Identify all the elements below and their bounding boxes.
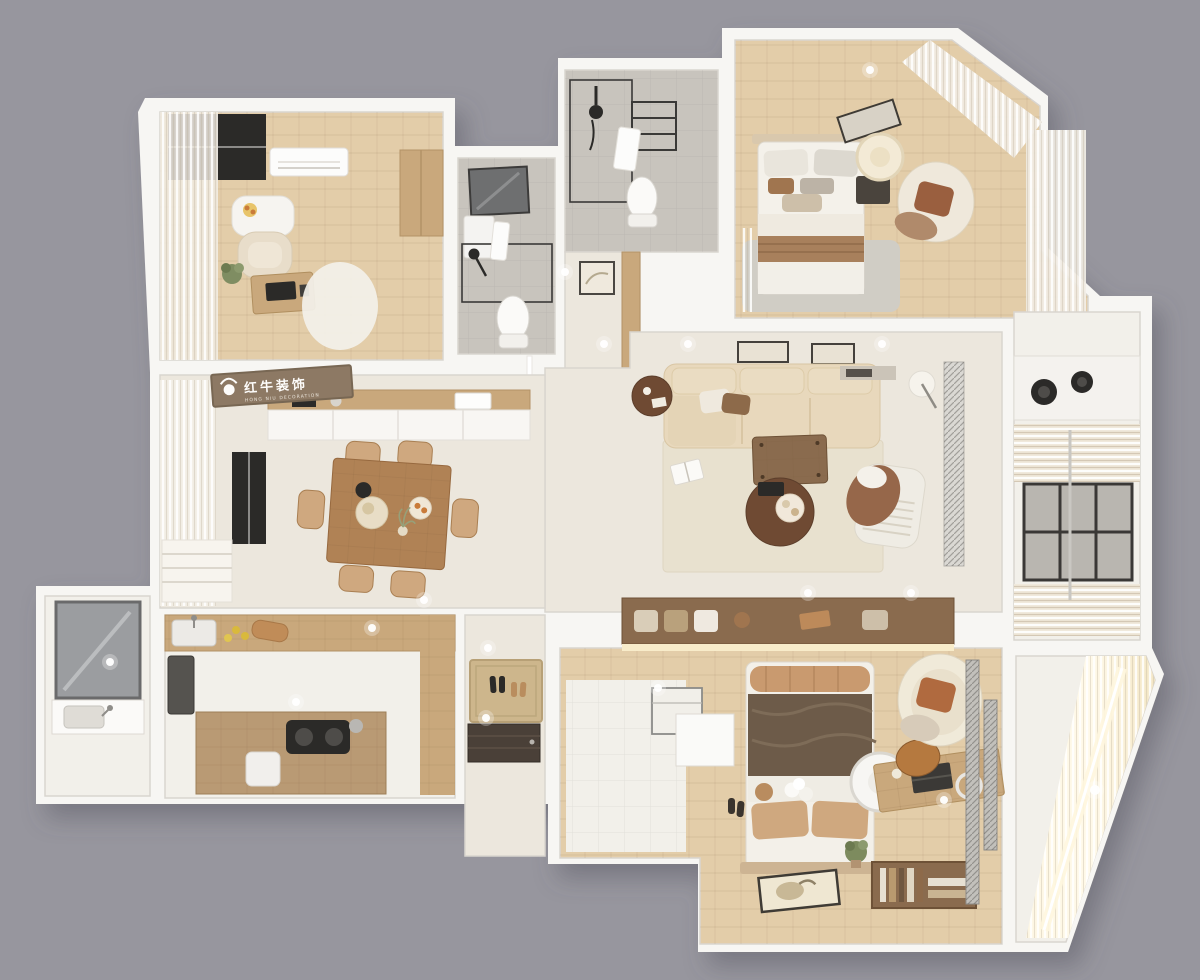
dining-roman-shades [162,540,232,602]
living-vent-hatch [944,362,964,566]
downlight [650,680,666,696]
console-clock [734,612,750,628]
door-handle [530,740,535,745]
downlight [800,585,816,601]
dining-window [232,452,266,544]
kitchenette-blinds-upper-slats [1014,424,1140,482]
downlight [936,792,952,808]
pillow-tan [811,801,869,840]
bathroom1-towel [490,221,510,260]
lemon [232,626,240,634]
bedroom2-pendant-lamp [857,134,903,180]
downlight [478,710,494,726]
downlight [596,336,612,352]
rolled-blanket [750,666,870,692]
closet-cube [676,714,734,766]
led-glow-strip [622,644,954,651]
study-rug [302,262,378,350]
lemon [241,632,249,640]
closet-console [622,598,954,651]
downlight [1086,781,1104,799]
room-living [545,332,1002,612]
kitchenette-blinds-lower-slats [1014,584,1140,636]
table-black-tray [758,482,784,496]
room-utility-balcony [45,596,150,796]
downlight [862,62,878,78]
hallway-wall-art [580,262,614,294]
kitchen-fridge [168,656,194,714]
floor-plan-stage: 红牛装饰 HONG NIU DECORATION [0,0,1200,980]
kitchen-stool [246,752,280,786]
room-kitchen [165,615,455,798]
kitchen-sink [172,615,216,646]
sofa-pillow-brown [721,392,751,415]
living-round-table [746,478,814,546]
entry-door [468,724,540,762]
room-entry [465,615,545,856]
bedside-slipper [728,798,735,814]
downlight [874,336,890,352]
study-sheer-curtains [160,112,218,360]
sideboard-white-box [455,393,491,409]
kitchen-island [196,712,386,794]
downlight [288,694,304,710]
study-armchair [238,232,292,278]
room-dining: 红牛装饰 HONG NIU DECORATION [160,365,545,608]
shoe-black [489,676,496,693]
utility-window-pane [56,602,140,698]
kitchen-pot [349,719,363,733]
dining-chair [297,490,326,530]
room-bathroom-2 [565,70,718,252]
dining-chair [338,565,374,593]
kitchenette-cooktop [1014,356,1140,420]
downlight [364,620,380,636]
room-study [160,112,443,360]
kitchenette-window [1024,484,1132,580]
utility-sink [52,700,144,734]
downlight [102,654,118,670]
dining-chair [450,498,479,538]
study-ac-unit [270,148,348,176]
downlight [903,585,919,601]
bathroom1-mirror [469,167,529,216]
bedroom2-bed [752,134,870,294]
living-side-table [632,376,672,416]
study-wall-desk [232,196,294,236]
master-floor-art [758,870,839,912]
living-coffee-table [752,435,828,486]
pillow-tan [751,800,809,840]
downlight [416,592,432,608]
bolster-pillow [755,783,773,801]
monitor [265,281,296,301]
room-bathroom-1 [458,158,555,354]
bedside-slipper [736,801,744,818]
downlight [480,640,496,656]
room-kitchenette-balcony [1014,312,1140,640]
downlight [557,264,573,280]
shoe-black [499,676,505,693]
master-bookshelf [872,862,976,908]
bathroom1-toilet [497,296,529,348]
living-media-ledge [840,366,896,380]
floor-plan-render: 红牛装饰 HONG NIU DECORATION [0,0,1200,980]
slipper-tan [511,682,517,697]
bedroom2-left-curtain [742,228,752,312]
bedroom2-knit-throw [758,236,864,262]
bathroom1-vanity [464,216,494,258]
slipper-tan [519,682,526,697]
bathroom2-toilet [627,177,657,227]
lemon [224,634,232,642]
downlight [680,336,696,352]
